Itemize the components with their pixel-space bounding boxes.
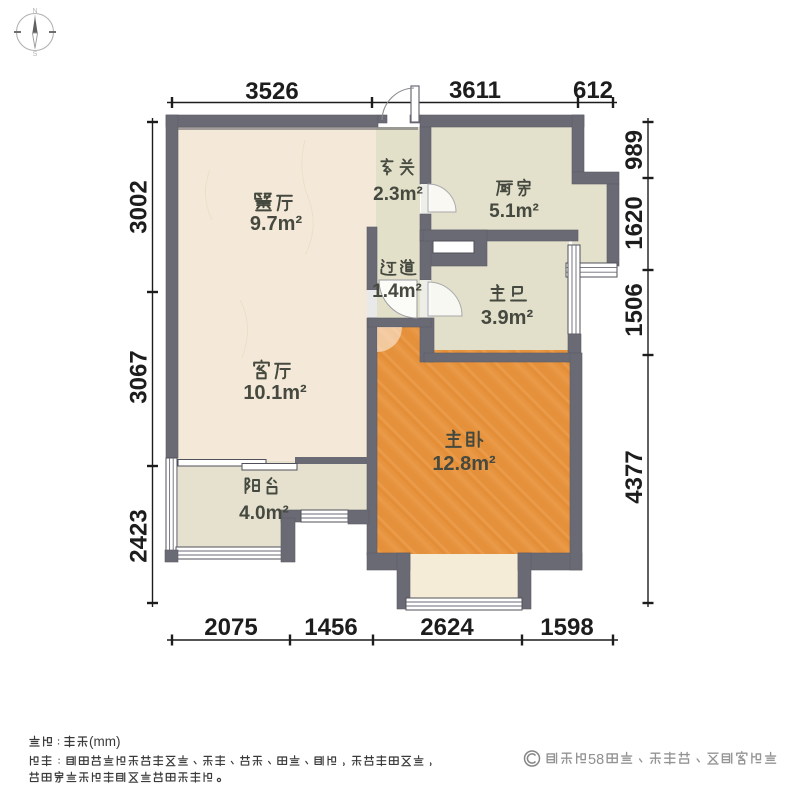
svg-text:3611: 3611 [449,77,501,104]
svg-text:2.3m²: 2.3m² [373,184,423,205]
svg-text:5.1m²: 5.1m² [489,201,539,222]
svg-text:3002: 3002 [126,180,153,233]
svg-text:1620: 1620 [621,196,648,249]
svg-text:N: N [32,8,37,15]
svg-text:989: 989 [621,130,648,170]
svg-text:1506: 1506 [621,283,648,336]
svg-text:(mm): (mm) [89,734,120,749]
svg-text:612: 612 [573,77,613,104]
svg-text:10.1m²: 10.1m² [243,382,307,404]
svg-text:S: S [33,51,38,58]
svg-text:4377: 4377 [621,450,648,503]
svg-text:1456: 1456 [304,614,357,641]
svg-text:3526: 3526 [245,78,298,105]
svg-text:3.9m²: 3.9m² [481,307,534,329]
svg-text:2624: 2624 [420,614,474,641]
svg-text:2075: 2075 [204,614,257,641]
svg-text:2423: 2423 [126,509,153,562]
svg-text:3067: 3067 [126,350,153,403]
svg-text:1.4m²: 1.4m² [372,281,422,302]
svg-text:9.7m²: 9.7m² [250,213,303,235]
svg-text:4.0m²: 4.0m² [239,503,289,524]
svg-text:58: 58 [588,752,604,768]
svg-text:1598: 1598 [540,614,593,641]
svg-text:12.8m²: 12.8m² [432,453,496,475]
